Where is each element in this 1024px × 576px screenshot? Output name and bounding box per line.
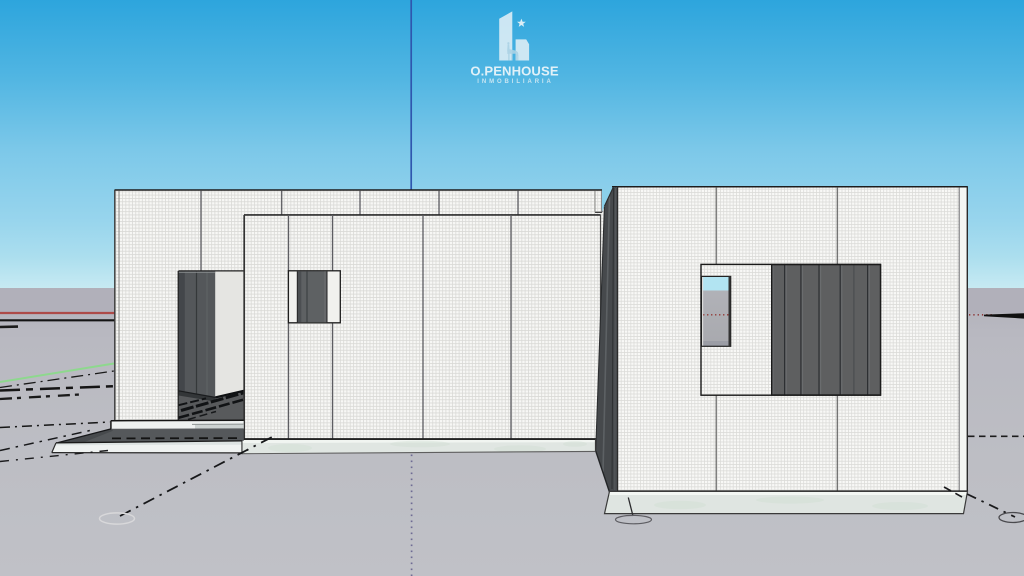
svg-text:INMOBILIARIA: INMOBILIARIA (477, 79, 553, 85)
svg-text:O.PENHOUSE: O.PENHOUSE (470, 64, 558, 79)
